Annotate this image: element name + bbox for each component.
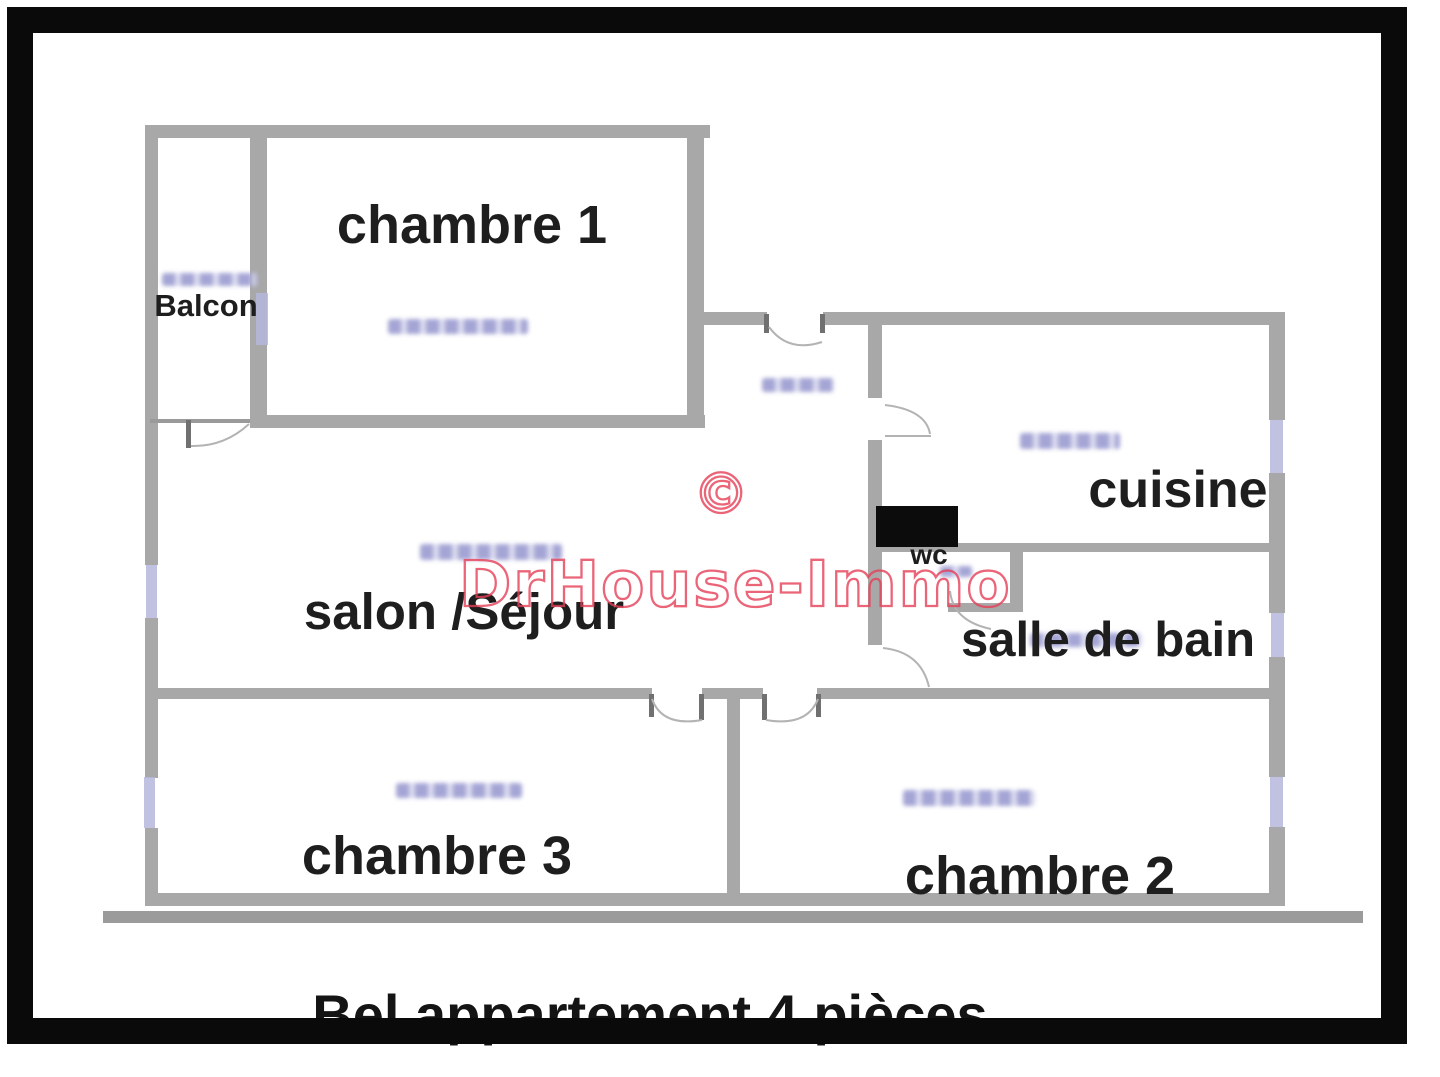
door-arc-chambre3 [652, 699, 702, 721]
door-arc-chambre2 [766, 699, 818, 721]
room-label-salle-de-bain: salle de bain [938, 616, 1278, 665]
room-label-cuisine: cuisine [1078, 464, 1278, 516]
dimension-blur-chambre3 [396, 783, 522, 798]
watermark-copyright-icon: © [693, 462, 749, 527]
dimension-blur-chambre2 [903, 790, 1035, 806]
door-arc-balcony [191, 424, 249, 446]
floor-plan-page: Balcon chambre 1 cuisine wc salle de bai… [0, 0, 1440, 1077]
door-arc-cuisine [885, 405, 930, 434]
room-label-chambre-3: chambre 3 [287, 829, 587, 883]
door-arc-entrance [769, 327, 822, 345]
room-label-balcon: Balcon [150, 290, 262, 321]
plan-caption: Bel appartement 4 pièces [300, 982, 1000, 1047]
room-label-chambre-1: chambre 1 [322, 198, 622, 252]
room-label-chambre-2: chambre 2 [890, 849, 1190, 903]
watermark-brand-text: DrHouse-Immo [459, 548, 1012, 621]
dimension-blur-entree [762, 378, 834, 392]
door-arcs-layer [0, 0, 1440, 1077]
dimension-blur-balcon [162, 273, 258, 286]
dimension-blur-chambre1 [388, 319, 528, 334]
dimension-blur-cuisine [1020, 433, 1120, 449]
door-arc-sdb [883, 648, 929, 687]
